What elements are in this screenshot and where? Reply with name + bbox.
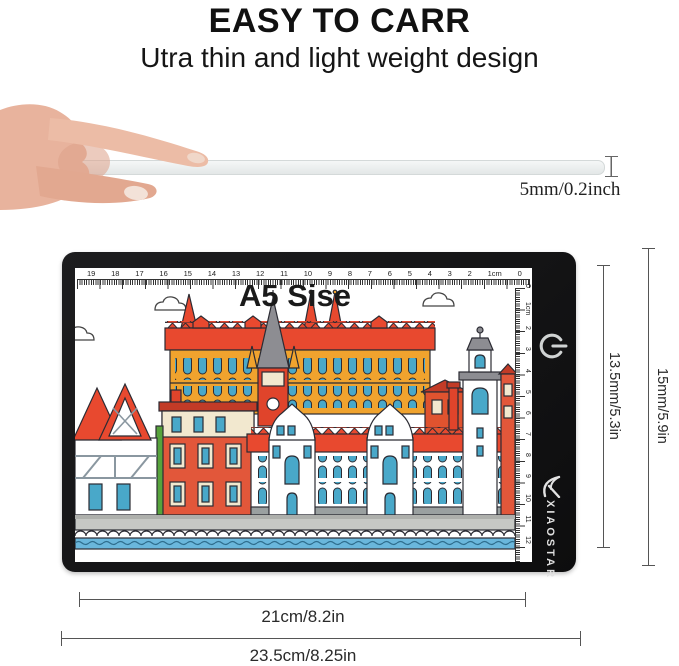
total-width-label: 23.5cm/8.25in — [0, 646, 606, 666]
ruler-number: 0 — [523, 281, 531, 291]
ruler-number: 10 — [304, 270, 312, 278]
ruler-number: 8 — [523, 450, 531, 460]
ruler-number: 17 — [135, 270, 143, 278]
ruler-number: 9 — [523, 471, 531, 481]
power-icon — [534, 328, 570, 364]
brand-name: XIAOSTAR — [544, 500, 556, 580]
ruler-number: 15 — [184, 270, 192, 278]
ruler-number: 11 — [280, 270, 288, 278]
product-image: EASY TO CARR Utra thin and light weight … — [0, 0, 679, 666]
ruler-number: 5 — [408, 270, 412, 278]
ruler-number: 5 — [523, 387, 531, 397]
ruler-number: 2 — [523, 323, 531, 333]
cityscape-artwork — [75, 288, 515, 562]
ruler-number: 12 — [256, 270, 264, 278]
display-width-label: 21cm/8.2in — [0, 607, 606, 627]
ruler-number: 11 — [523, 514, 531, 524]
brand-swirl-icon — [537, 474, 563, 498]
ruler-number: 6 — [523, 408, 531, 418]
hand-photo — [0, 96, 218, 218]
ruler-number: 3 — [523, 344, 531, 354]
display-width-line — [79, 592, 526, 607]
ruler-number: 9 — [328, 270, 332, 278]
thickness-measure-mark — [605, 156, 618, 177]
ruler-number: 2 — [468, 270, 472, 278]
ruler-number: 6 — [388, 270, 392, 278]
ruler-number: 18 — [111, 270, 119, 278]
ruler-number: 19 — [87, 270, 95, 278]
total-width-line — [61, 631, 581, 646]
ruler-number: 0 — [518, 270, 522, 278]
cloud-icon — [75, 327, 94, 340]
brand-logo: XIAOSTAR — [531, 474, 569, 580]
ruler-number: 7 — [523, 429, 531, 439]
pad-display-area: 19181716151413121110987654321cm0 — [75, 268, 532, 562]
page-subtitle: Utra thin and light weight design — [0, 42, 679, 74]
ruler-number: 1cm — [488, 270, 502, 278]
ruler-number: 12 — [523, 535, 531, 545]
ruler-number: 13 — [232, 270, 240, 278]
ruler-number: 16 — [159, 270, 167, 278]
ruler-top-numbers: 19181716151413121110987654321cm0 — [75, 268, 532, 278]
ruler-number: 4 — [523, 366, 531, 376]
page-title: EASY TO CARR — [0, 2, 679, 41]
ruler-number: 7 — [368, 270, 372, 278]
light-pad: 19181716151413121110987654321cm0 — [62, 252, 576, 572]
ruler-number: 8 — [348, 270, 352, 278]
ruler-number: 10 — [523, 493, 531, 503]
total-height-label: 15mm/5.9in — [654, 368, 670, 444]
ruler-number: 14 — [208, 270, 216, 278]
ruler-number: 4 — [428, 270, 432, 278]
thickness-label: 5mm/0.2inch — [505, 179, 635, 201]
display-height-label: 13.5mm/5.3in — [606, 352, 622, 440]
size-label: A5 Sise — [75, 278, 515, 314]
ruler-number: 1cm — [523, 302, 531, 312]
ruler-number: 3 — [448, 270, 452, 278]
ruler-side: 01cm23456789101112 — [515, 288, 532, 562]
